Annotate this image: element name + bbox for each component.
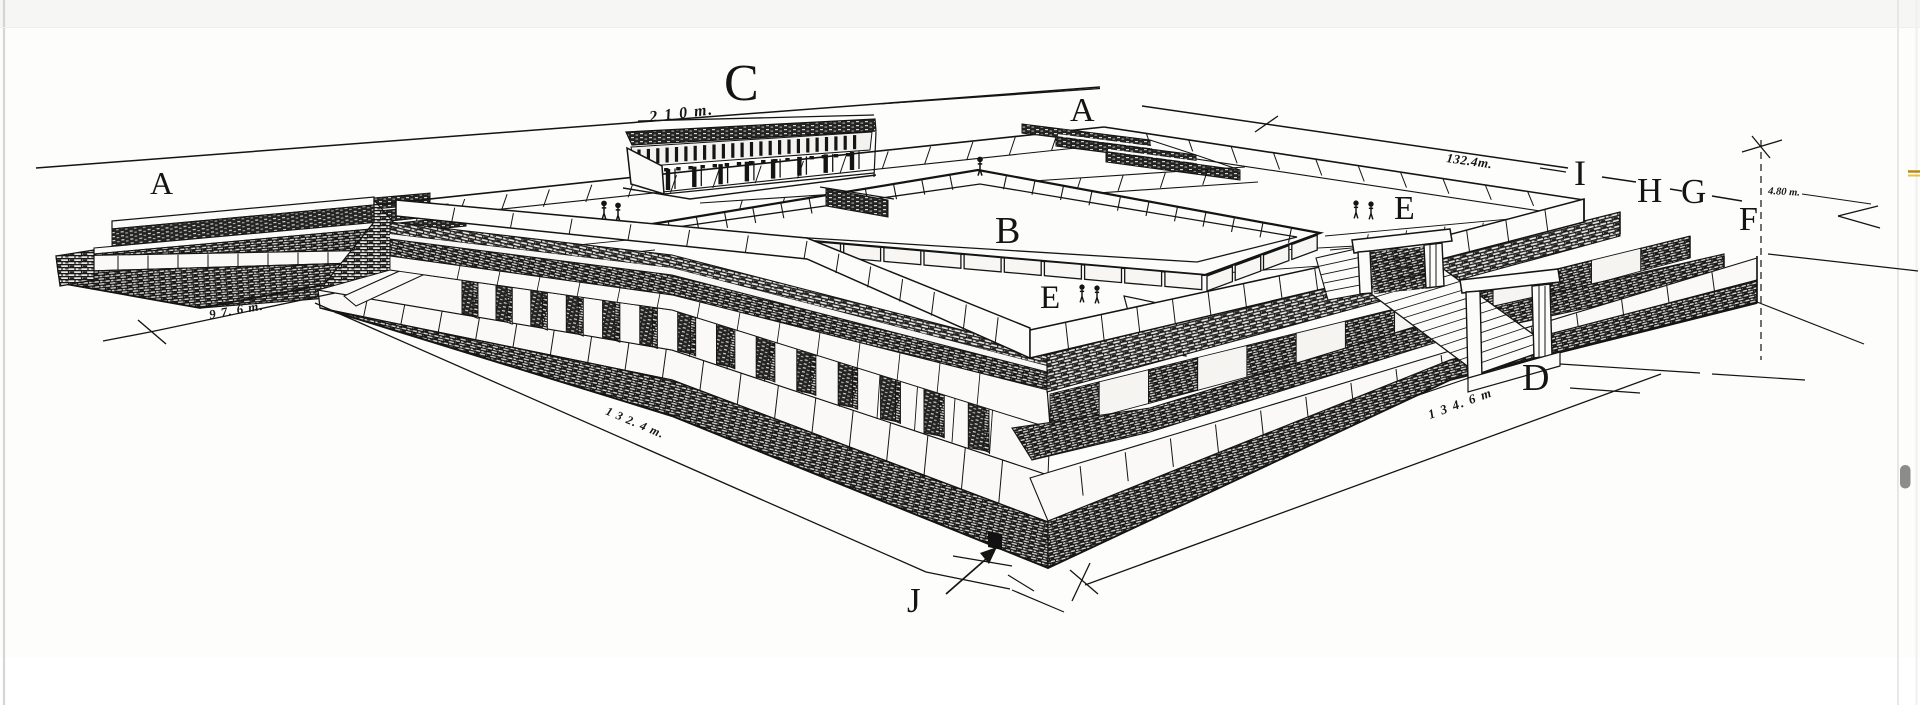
svg-text:F: F	[1739, 201, 1758, 238]
svg-text:E: E	[1394, 190, 1415, 227]
svg-text:B: B	[995, 210, 1020, 252]
svg-text:G: G	[1681, 172, 1706, 211]
svg-text:A: A	[1070, 92, 1095, 129]
svg-text:A: A	[150, 165, 173, 201]
svg-text:D: D	[1522, 357, 1549, 399]
svg-text:E: E	[1040, 280, 1060, 316]
svg-text:I: I	[1574, 153, 1586, 193]
svg-text:H: H	[1637, 171, 1662, 210]
svg-text:4.80 m.: 4.80 m.	[1767, 186, 1800, 199]
svg-text:C: C	[724, 55, 759, 112]
svg-text:J: J	[907, 581, 921, 620]
